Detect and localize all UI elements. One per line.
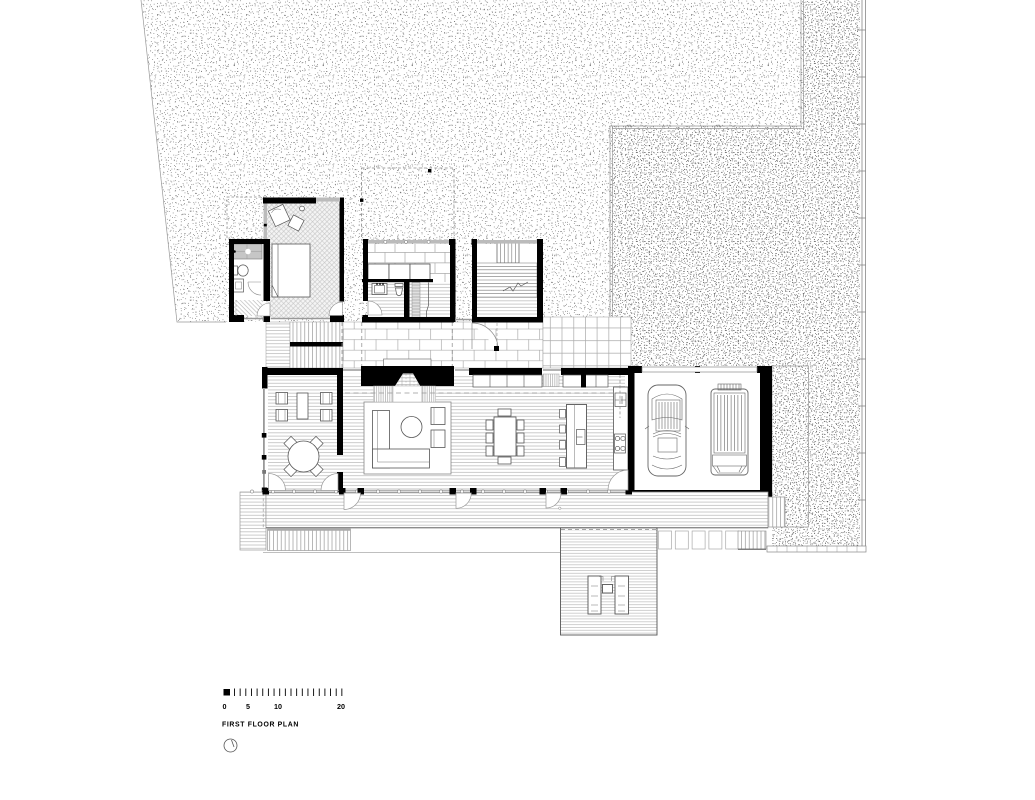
svg-text:10: 10 [274,702,282,711]
svg-text:5: 5 [246,702,250,711]
svg-text:0: 0 [223,702,227,711]
svg-text:FIRST FLOOR PLAN: FIRST FLOOR PLAN [222,722,299,729]
svg-text:20: 20 [337,702,345,711]
